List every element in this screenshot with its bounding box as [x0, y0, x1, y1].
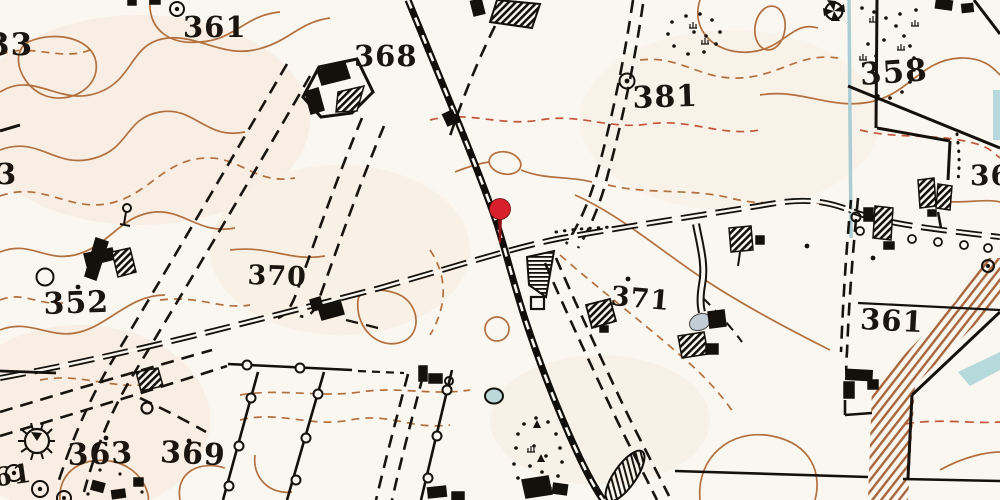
windmill-icon: [823, 0, 845, 21]
elevation-label: 369: [159, 438, 226, 471]
elevation-label: 370: [247, 262, 307, 291]
elevation-label: 358: [859, 55, 929, 91]
pin-head: [490, 199, 511, 220]
elevation-label: 371: [610, 283, 672, 315]
elevation-label: 361: [859, 305, 924, 337]
pond: [485, 389, 503, 404]
elevation-label: 61: [0, 461, 33, 492]
elevation-label: 33: [0, 30, 33, 61]
pin-stem: [498, 218, 502, 243]
elevation-label: 381: [632, 82, 699, 114]
map-viewport[interactable]: 33 361 3 368 381 358 36 352 370 371 361 …: [0, 0, 1000, 500]
map-canvas[interactable]: [0, 0, 1000, 500]
elevation-label: 368: [354, 42, 418, 71]
elevation-label: 3: [0, 160, 17, 189]
farm-lane: [696, 224, 703, 312]
map-pin[interactable]: [486, 197, 514, 249]
elevation-label: 352: [43, 288, 110, 320]
elevation-label: 363: [67, 439, 134, 471]
elevation-label: 36: [970, 162, 1000, 190]
elevation-label: 361: [183, 13, 247, 42]
